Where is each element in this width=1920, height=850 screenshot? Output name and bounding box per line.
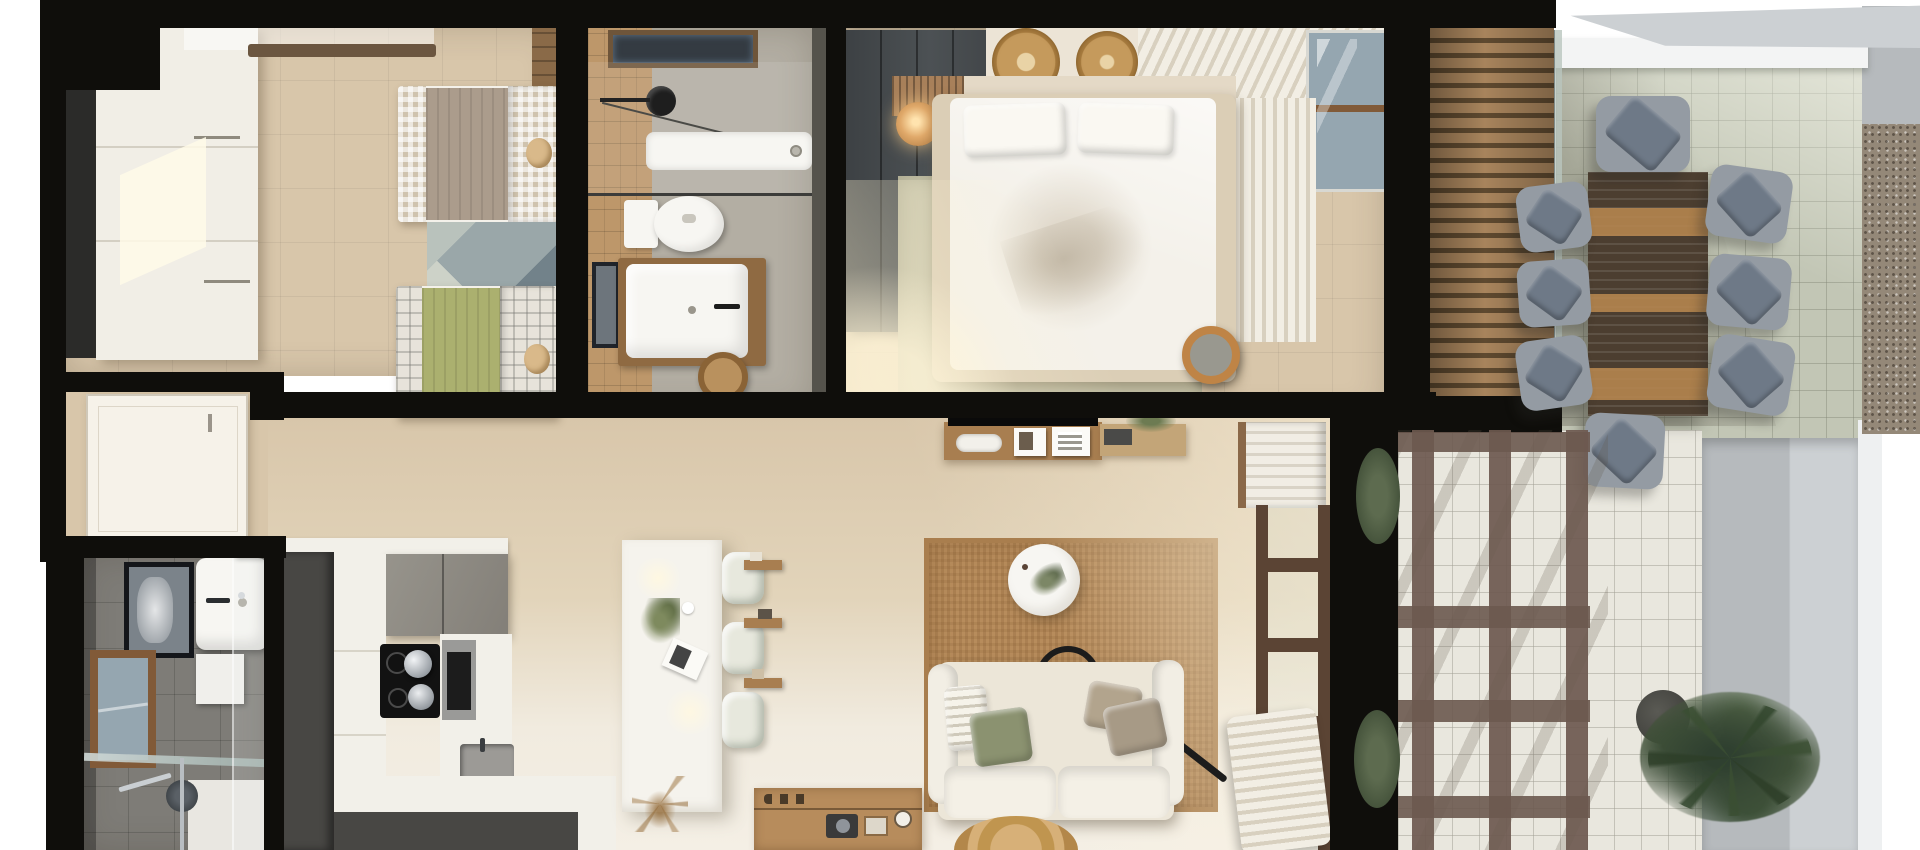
taupe-blanket [426, 88, 508, 220]
twin-wall-panel [64, 88, 96, 358]
toilet-tank [624, 200, 658, 248]
photo-frame [1052, 427, 1090, 456]
twin-bed-taupe [398, 86, 558, 222]
outdoor-chair [1596, 96, 1690, 172]
shelf-board [744, 678, 782, 688]
chair-cushion [1603, 95, 1684, 174]
bath-top-mirror [592, 262, 620, 348]
master-sunlight [846, 180, 1386, 418]
outdoor-chair [1516, 258, 1592, 329]
wall-shelves [744, 552, 782, 722]
terrace-door-rung [1256, 638, 1330, 652]
entry-door [86, 394, 248, 542]
chair-cushion [1714, 169, 1784, 240]
toilet-buttons [682, 214, 696, 223]
pergola-post [1412, 430, 1434, 850]
palm-fronds [1648, 700, 1812, 816]
tv-soundbar [948, 417, 1098, 426]
wall-bath-bottom-right [264, 536, 284, 850]
terrace-bush [1356, 448, 1400, 544]
frame-art [1058, 432, 1082, 450]
twin-closet-shelves [532, 24, 558, 90]
sofa-seat-cushion [944, 766, 1056, 818]
wall-horizontal-main [250, 392, 1436, 418]
twin-ceiling-light [248, 44, 436, 57]
linen-shelf-frame [1238, 422, 1246, 508]
bath-bottom-window [90, 650, 156, 768]
cabinet-seam [334, 734, 386, 736]
outdoor-chair [1514, 180, 1594, 254]
window-reflection [1317, 39, 1357, 179]
shower-glass-zone [588, 62, 812, 196]
table-light-band [1588, 294, 1708, 312]
chair-cushion [1523, 342, 1585, 404]
table-light-band [1588, 208, 1708, 236]
sun-hat [526, 138, 552, 168]
door-knob [238, 592, 245, 599]
bed-pillow [1077, 102, 1175, 155]
master-corner-window [1306, 30, 1388, 192]
terrace-door-rung [1256, 558, 1330, 572]
frame-decor [864, 816, 888, 836]
sideboard [754, 788, 922, 850]
shelf-decor [758, 609, 772, 619]
wall-jog [250, 372, 284, 420]
toilet-bowl [654, 196, 724, 252]
pergola-post [1566, 430, 1588, 850]
coffee-table [1008, 544, 1080, 616]
sideboard-holes [764, 794, 808, 804]
dried-grass-decor [632, 776, 688, 832]
wardrobe-seam [96, 146, 258, 148]
island-glare [632, 558, 684, 598]
gingham-runner [398, 86, 426, 222]
toilet [624, 196, 724, 252]
chair-cushion [1523, 263, 1584, 323]
camera-decor [826, 814, 858, 838]
chair-cushion [1714, 257, 1785, 328]
wall-twin-bath [556, 0, 588, 412]
mirror-reflection [137, 577, 173, 643]
frame-art [1019, 432, 1033, 450]
door-handle [208, 414, 212, 432]
built-in-oven [442, 640, 476, 720]
chair-cushion [1715, 339, 1786, 411]
kitchen-tall-cabinets [282, 552, 334, 850]
outdoor-chair [1705, 332, 1798, 418]
apartment-floorplan-render [0, 0, 1920, 850]
green-pillow [969, 706, 1034, 768]
cabinet-seam [334, 650, 386, 652]
linen-shelf [1238, 422, 1326, 508]
shelf-board [744, 560, 782, 570]
sheer-curtain-roll [1226, 707, 1332, 850]
kitchen-upper-cabinets [384, 554, 508, 636]
wardrobe-handle [204, 280, 250, 283]
sink-faucet [480, 738, 485, 752]
kettle [404, 650, 432, 678]
basin-drain [688, 306, 696, 314]
wardrobe-sunlight [120, 137, 206, 285]
outdoor-chair [1703, 163, 1794, 246]
bed-pillow [963, 102, 1067, 158]
shower-head-icon [646, 86, 676, 116]
bath-glass-door [232, 558, 266, 850]
outdoor-chair [1705, 253, 1793, 332]
shower-glass-pole [180, 758, 184, 850]
folded-towels [1246, 422, 1326, 508]
table-light-band [1588, 368, 1708, 400]
island-glare [662, 690, 718, 734]
outdoor-chair [1513, 333, 1594, 412]
burner-ring [388, 688, 408, 708]
shower-tray [646, 132, 812, 170]
door-panel-line [98, 406, 238, 532]
terrace-bush [1354, 710, 1400, 808]
island-cup [682, 602, 694, 614]
wall-master-right [1384, 0, 1430, 416]
clock-decor [894, 810, 912, 828]
bottom-cabinet-front [334, 812, 578, 850]
table-plant [1022, 560, 1071, 604]
window-pane-line [98, 703, 148, 713]
wall-corner-topleft [40, 0, 160, 90]
chair-cushion [1524, 187, 1585, 246]
basin-faucet [714, 304, 740, 309]
shelf-decor [752, 669, 764, 679]
shelf-decor [750, 552, 762, 561]
wall-twin-bottom [40, 372, 272, 392]
shelf-tray [956, 434, 1002, 452]
wall-top [40, 0, 1556, 28]
kitchen-bottom-counter [334, 776, 616, 850]
pot [408, 684, 434, 710]
table-berry [1022, 564, 1028, 570]
shower-arm [600, 98, 650, 102]
outdoor-table [1588, 172, 1708, 416]
cabinet-seam [442, 554, 444, 636]
vanity-basin [626, 264, 748, 358]
pergola-post [1489, 430, 1511, 850]
photo-frame [1014, 428, 1046, 456]
sofa-seat-cushion [1058, 766, 1170, 818]
induction-hob [380, 644, 440, 718]
wall-bath-master [826, 0, 846, 412]
kitchen-white-column [334, 554, 386, 812]
straw-hat [524, 344, 550, 374]
gravel-planter-strip [1862, 124, 1920, 434]
kitchen-island [622, 540, 722, 812]
camera-lens [836, 819, 850, 833]
oven-door [447, 652, 471, 710]
shelf-board [744, 618, 782, 628]
media-shelf [944, 422, 1102, 460]
bath-bottom-mirror [124, 562, 194, 658]
magazine-photo [669, 645, 692, 670]
twin-rug [427, 222, 558, 286]
basin-faucet [206, 598, 230, 603]
shower-drain [790, 145, 802, 157]
sofa [928, 658, 1184, 824]
sideboard-shelf-line [754, 808, 922, 810]
bench-item [1104, 429, 1132, 445]
wall-left-lower [46, 536, 84, 850]
privacy-wall-edge [1858, 420, 1882, 850]
